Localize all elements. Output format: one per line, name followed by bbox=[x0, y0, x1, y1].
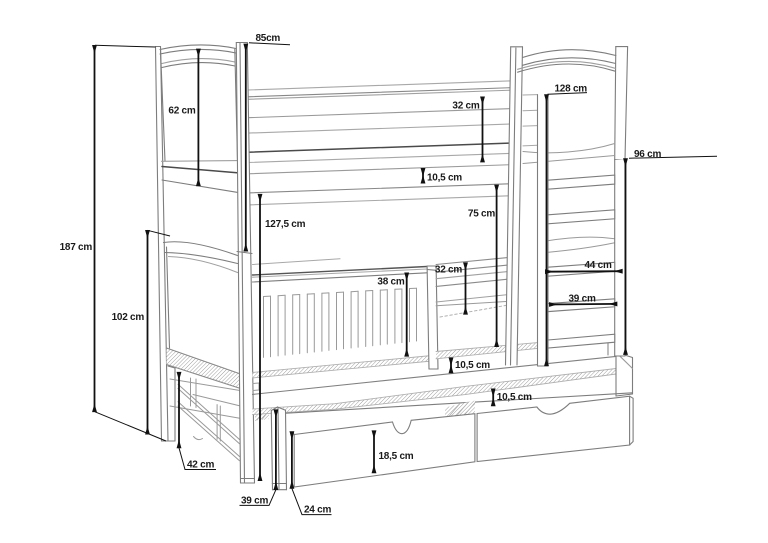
svg-text:39 cm: 39 cm bbox=[241, 495, 268, 506]
svg-text:39 cm: 39 cm bbox=[569, 294, 596, 305]
svg-text:24 cm: 24 cm bbox=[304, 505, 331, 516]
svg-text:18,5 cm: 18,5 cm bbox=[379, 451, 414, 462]
svg-text:102 cm: 102 cm bbox=[112, 312, 145, 323]
svg-text:187 cm: 187 cm bbox=[60, 242, 93, 253]
svg-text:10,5 cm: 10,5 cm bbox=[455, 360, 490, 371]
svg-text:96 cm: 96 cm bbox=[634, 149, 661, 160]
svg-text:32 cm: 32 cm bbox=[452, 101, 479, 112]
svg-text:42 cm: 42 cm bbox=[187, 460, 214, 471]
svg-text:127,5 cm: 127,5 cm bbox=[265, 219, 306, 230]
svg-text:10,5 cm: 10,5 cm bbox=[497, 392, 532, 403]
svg-text:32 cm: 32 cm bbox=[435, 265, 462, 276]
svg-text:75 cm: 75 cm bbox=[468, 209, 495, 220]
svg-text:38 cm: 38 cm bbox=[377, 276, 404, 287]
svg-text:10,5 cm: 10,5 cm bbox=[427, 173, 462, 184]
svg-text:44 cm: 44 cm bbox=[585, 260, 612, 271]
svg-text:128 cm: 128 cm bbox=[555, 83, 588, 94]
svg-text:85cm: 85cm bbox=[256, 33, 281, 44]
svg-text:62 cm: 62 cm bbox=[168, 106, 195, 117]
